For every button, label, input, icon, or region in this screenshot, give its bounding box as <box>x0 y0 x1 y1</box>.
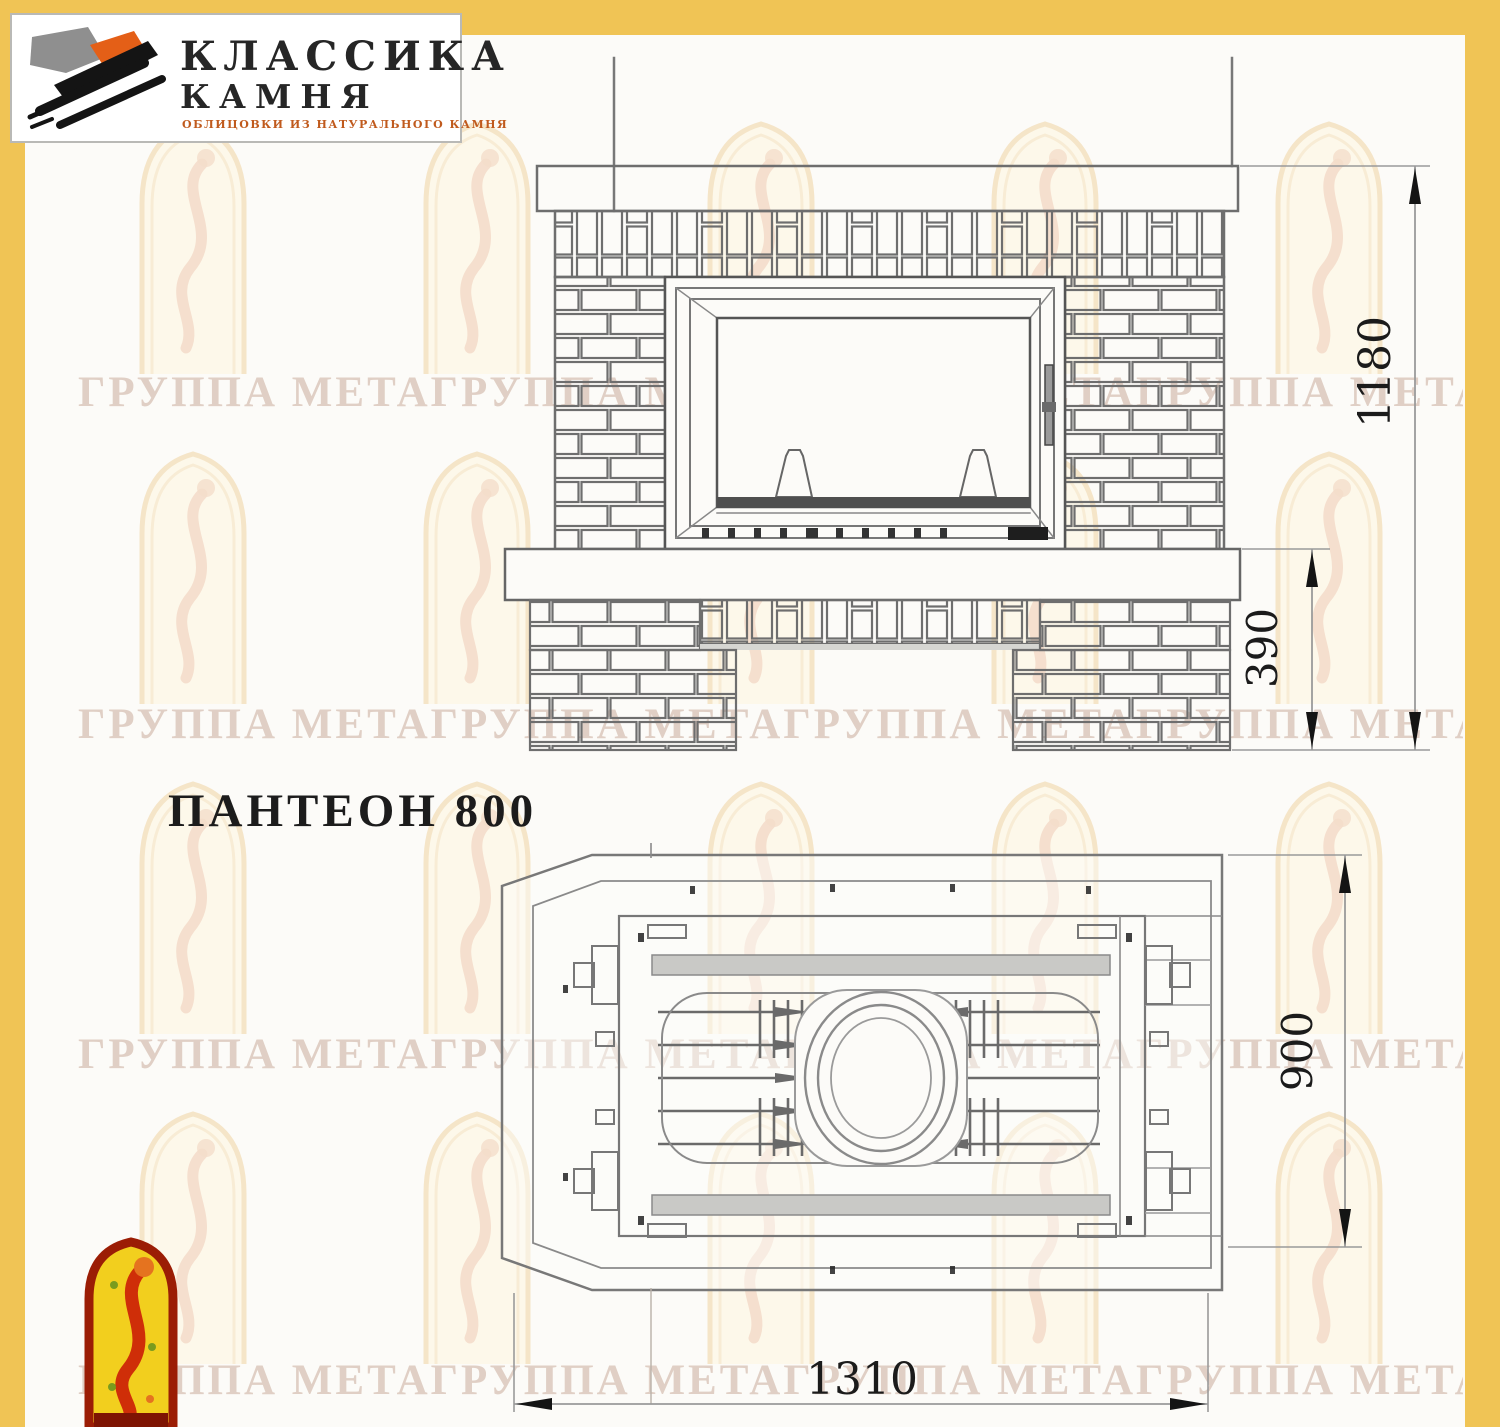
brick-column-left <box>555 277 665 549</box>
company-logo: КЛАССИКА КАМНЯ ОБЛИЦОВКИ ИЗ НАТУРАЛЬНОГО… <box>10 13 462 143</box>
front-view <box>505 58 1240 750</box>
arched-window-figure-icon <box>84 1237 179 1427</box>
badge-plate <box>1008 527 1048 540</box>
grate-bar <box>717 497 1030 508</box>
flue-collar <box>795 990 967 1166</box>
logo-line1: КЛАССИКА <box>180 33 511 80</box>
technical-drawing: 1180 390 <box>0 0 1500 1427</box>
soldier-brick-course <box>555 211 1224 277</box>
dim-label-width-1310: 1310 <box>806 1354 918 1405</box>
dim-label-height-1180: 1180 <box>1350 316 1401 428</box>
hearth-shelf <box>505 549 1240 600</box>
model-title: ПАНТЕОН 800 <box>168 784 537 838</box>
mantel-shelf <box>537 166 1238 211</box>
stone-texture-icon <box>26 23 176 138</box>
base-pier-left <box>530 650 736 750</box>
firebox-insert <box>665 277 1065 549</box>
dim-label-depth-900: 900 <box>1273 1011 1322 1091</box>
logo-line2: КАМНЯ <box>180 77 379 116</box>
brick-column-right <box>1065 277 1224 549</box>
frame-bar-top <box>652 955 1110 975</box>
logo-subtitle: ОБЛИЦОВКИ ИЗ НАТУРАЛЬНОГО КАМНЯ <box>182 118 508 131</box>
dim-label-base-390: 390 <box>1238 608 1287 688</box>
plan-view <box>502 843 1222 1404</box>
frame-bar-bottom <box>652 1195 1110 1215</box>
base-pier-right <box>1013 650 1230 750</box>
scanned-sheet: ГРУППА МЕТАГРУППА МЕТАГРУППА МЕТАГРУППА … <box>0 0 1500 1427</box>
base-brickwork <box>530 600 1230 750</box>
front-view-dimensions: 1180 390 <box>1232 166 1430 750</box>
